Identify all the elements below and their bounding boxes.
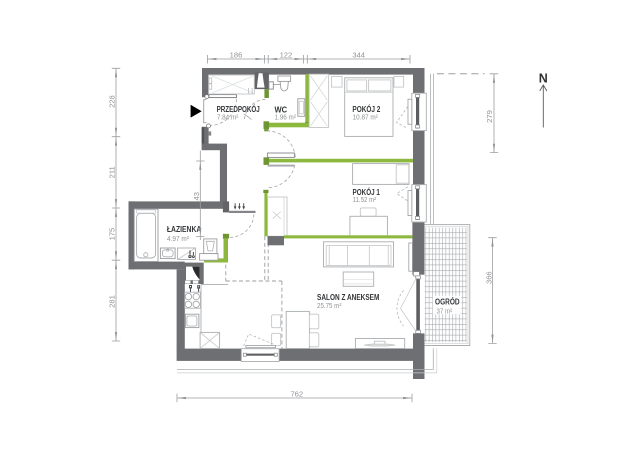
svg-text:N: N [539, 72, 548, 86]
svg-text:OGRÓD: OGRÓD [435, 298, 460, 307]
svg-text:11.52 m²: 11.52 m² [353, 195, 377, 204]
svg-text:279: 279 [485, 110, 494, 123]
svg-text:344: 344 [352, 50, 365, 59]
svg-text:281: 281 [107, 295, 116, 308]
svg-text:10.87 m²: 10.87 m² [353, 113, 379, 122]
svg-text:ŁAZIENKA: ŁAZIENKA [167, 225, 202, 234]
svg-text:762: 762 [290, 389, 303, 398]
svg-text:4.97 m²: 4.97 m² [167, 234, 189, 243]
svg-text:366: 366 [485, 271, 494, 284]
svg-text:7.84 m²: 7.84 m² [217, 112, 239, 121]
svg-text:43: 43 [192, 192, 201, 200]
svg-text:228: 228 [107, 95, 116, 108]
svg-text:186: 186 [230, 50, 243, 59]
svg-text:1.96 m²: 1.96 m² [274, 112, 296, 121]
svg-text:122: 122 [280, 50, 293, 59]
svg-text:175: 175 [107, 228, 116, 241]
svg-text:25.75 m²: 25.75 m² [317, 301, 342, 310]
svg-text:211: 211 [107, 166, 116, 178]
svg-text:37 m²: 37 m² [436, 306, 452, 315]
